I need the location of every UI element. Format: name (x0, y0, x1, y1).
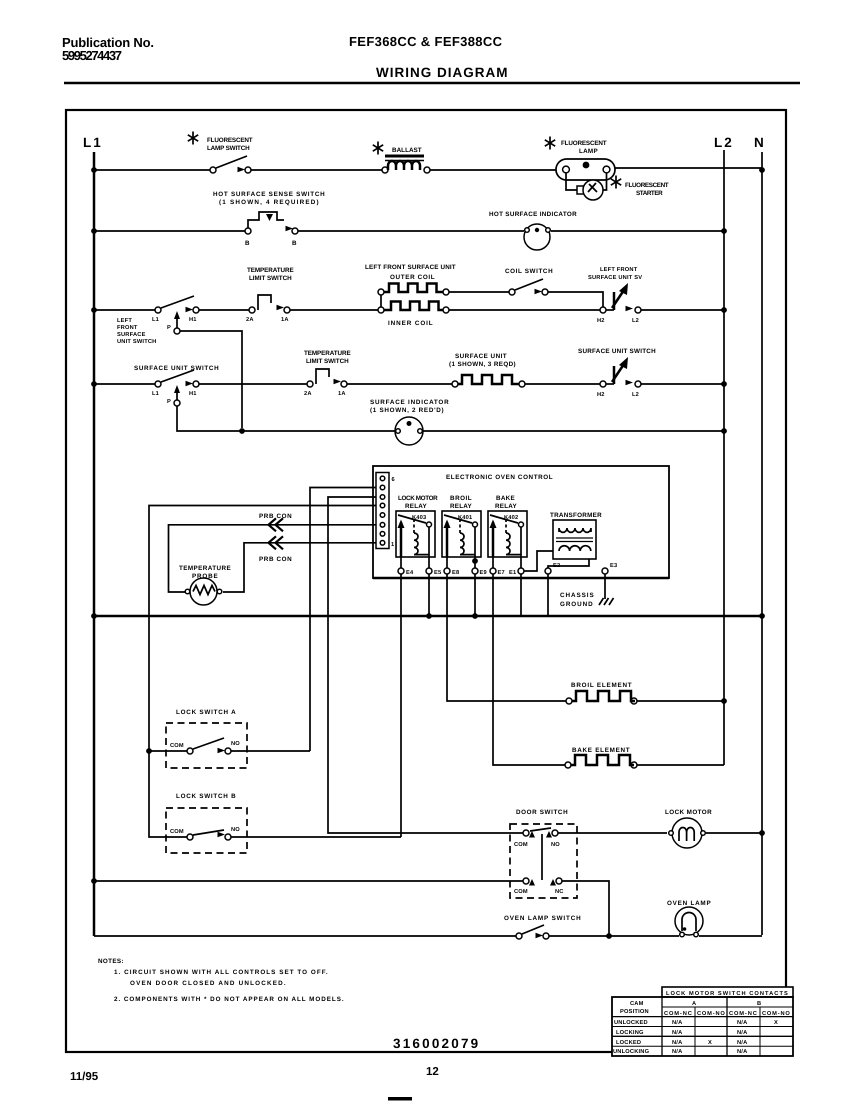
svg-text:X: X (708, 1040, 712, 1046)
svg-text:N/A: N/A (737, 1029, 747, 1036)
svg-text:LAMP: LAMP (579, 148, 598, 155)
svg-text:TRANSFORMER: TRANSFORMER (550, 512, 602, 519)
svg-text:L2: L2 (714, 135, 734, 150)
svg-text:P: P (167, 399, 171, 405)
svg-text:6: 6 (392, 477, 395, 483)
svg-text:UNIT SWITCH: UNIT SWITCH (117, 339, 156, 345)
svg-text:H1: H1 (189, 317, 197, 323)
svg-text:K403: K403 (412, 515, 426, 521)
svg-text:E7: E7 (498, 570, 505, 576)
svg-text:GROUND: GROUND (560, 601, 593, 608)
svg-text:B: B (245, 240, 250, 247)
svg-text:LOCKED: LOCKED (616, 1040, 641, 1046)
svg-text:OUTER COIL: OUTER COIL (390, 274, 435, 281)
svg-text:NO: NO (231, 741, 240, 747)
svg-text:FLUORESCENT: FLUORESCENT (625, 182, 669, 189)
svg-text:PRB CON: PRB CON (259, 556, 292, 563)
svg-text:LEFT FRONT: LEFT FRONT (600, 267, 638, 273)
svg-text:HOT SURFACE SENSE SWITCH: HOT SURFACE SENSE SWITCH (213, 191, 325, 198)
svg-text:OVEN LAMP: OVEN LAMP (667, 900, 711, 907)
svg-text:1: 1 (391, 542, 394, 548)
svg-text:STARTER: STARTER (636, 190, 663, 197)
svg-text:(1 SHOWN, 4 REQUIRED): (1 SHOWN, 4 REQUIRED) (219, 199, 319, 206)
svg-text:316002079: 316002079 (393, 1036, 480, 1051)
svg-text:DOOR SWITCH: DOOR SWITCH (516, 809, 568, 816)
svg-text:WIRING DIAGRAM: WIRING DIAGRAM (376, 65, 509, 80)
svg-text:INNER COIL: INNER COIL (388, 320, 433, 327)
svg-text:COIL SWITCH: COIL SWITCH (505, 268, 553, 275)
svg-text:LOCK SWITCH A: LOCK SWITCH A (176, 709, 236, 716)
svg-text:CAM: CAM (630, 1001, 644, 1007)
svg-text:FLUORESCENT: FLUORESCENT (561, 140, 607, 147)
svg-text:E8: E8 (452, 570, 459, 576)
svg-text:CHASSIS: CHASSIS (560, 592, 594, 599)
svg-text:BAKE ELEMENT: BAKE ELEMENT (572, 747, 630, 754)
svg-text:COM: COM (170, 743, 184, 749)
svg-text:B: B (757, 1001, 761, 1007)
svg-text:PRB CON: PRB CON (259, 513, 292, 520)
svg-text:P: P (167, 325, 171, 331)
svg-text:FRONT: FRONT (117, 325, 138, 331)
svg-text:NC: NC (555, 889, 564, 895)
svg-text:2A: 2A (246, 317, 254, 323)
svg-text:L1: L1 (152, 317, 159, 323)
svg-text:11/95: 11/95 (70, 1071, 99, 1083)
svg-text:1A: 1A (281, 317, 289, 323)
svg-text:SURFACE UNIT: SURFACE UNIT (455, 353, 507, 360)
svg-text:N: N (754, 135, 764, 150)
svg-text:UNLOCKING: UNLOCKING (613, 1049, 650, 1055)
svg-text:BAKE: BAKE (496, 495, 515, 502)
svg-text:(1 SHOWN, 3 REQD): (1 SHOWN, 3 REQD) (449, 361, 516, 368)
svg-text:UNLOCKED: UNLOCKED (614, 1020, 648, 1026)
svg-text:E4: E4 (406, 570, 414, 576)
svg-text:LOCK SWITCH B: LOCK SWITCH B (176, 793, 236, 800)
svg-text:COM-NO: COM-NO (697, 1011, 725, 1017)
svg-text:LOCKING: LOCKING (616, 1030, 644, 1036)
svg-text:LEFT FRONT SURFACE UNIT: LEFT FRONT SURFACE UNIT (365, 264, 456, 271)
svg-text:LOCK MOTOR SWITCH CONTACTS: LOCK MOTOR SWITCH CONTACTS (666, 991, 788, 997)
svg-text:RELAY: RELAY (495, 503, 517, 510)
svg-text:N/A: N/A (672, 1029, 682, 1036)
svg-text:LEFT: LEFT (117, 318, 132, 324)
svg-text:N/A: N/A (737, 1048, 747, 1055)
svg-text:COM: COM (514, 842, 528, 848)
svg-text:N/A: N/A (737, 1019, 747, 1026)
svg-text:COM: COM (170, 829, 184, 835)
svg-text:FLUORESCENT: FLUORESCENT (207, 137, 253, 144)
svg-text:K401: K401 (458, 515, 472, 521)
svg-text:H2: H2 (597, 318, 605, 324)
svg-text:L1: L1 (152, 391, 159, 397)
svg-text:LOCK MOTOR: LOCK MOTOR (398, 495, 438, 502)
svg-text:SURFACE UNIT SV: SURFACE UNIT SV (588, 275, 642, 281)
svg-text:H1: H1 (189, 391, 197, 397)
svg-text:5995274437: 5995274437 (62, 48, 122, 63)
svg-text:LIMIT SWITCH: LIMIT SWITCH (249, 275, 292, 282)
svg-text:(1 SHOWN, 2 RED'D): (1 SHOWN, 2 RED'D) (370, 407, 444, 414)
svg-text:BALLAST: BALLAST (392, 147, 422, 154)
svg-text:L2: L2 (632, 318, 639, 324)
svg-text:E1: E1 (509, 570, 516, 576)
svg-text:L2: L2 (632, 392, 639, 398)
svg-text:E5: E5 (434, 570, 441, 576)
svg-text:LIMIT SWITCH: LIMIT SWITCH (306, 358, 349, 365)
svg-text:ELECTRONIC OVEN CONTROL: ELECTRONIC OVEN CONTROL (446, 474, 553, 481)
svg-text:LAMP SWITCH: LAMP SWITCH (207, 145, 250, 152)
svg-text:NO: NO (551, 842, 560, 848)
svg-text:COM-NC: COM-NC (729, 1011, 757, 1017)
svg-text:SURFACE UNIT SWITCH: SURFACE UNIT SWITCH (134, 365, 219, 372)
svg-text:RELAY: RELAY (450, 503, 472, 510)
svg-text:SURFACE: SURFACE (117, 332, 146, 338)
svg-text:LOCK MOTOR: LOCK MOTOR (665, 809, 712, 816)
svg-text:TEMPERATURE: TEMPERATURE (179, 565, 231, 572)
svg-text:TEMPERATURE: TEMPERATURE (247, 267, 294, 274)
svg-text:K402: K402 (504, 515, 518, 521)
svg-text:TEMPERATURE: TEMPERATURE (304, 350, 351, 357)
svg-text:12: 12 (426, 1066, 439, 1078)
svg-text:A: A (692, 1001, 696, 1007)
svg-text:L1: L1 (83, 135, 103, 150)
svg-text:NOTES:: NOTES: (98, 958, 124, 965)
svg-text:N/A: N/A (672, 1048, 682, 1055)
svg-text:COM: COM (514, 889, 528, 895)
svg-text:BROIL ELEMENT: BROIL ELEMENT (571, 682, 632, 689)
svg-text:HOT SURFACE INDICATOR: HOT SURFACE INDICATOR (489, 211, 577, 218)
svg-text:B: B (292, 240, 297, 247)
svg-text:COM-NO: COM-NO (762, 1011, 790, 1017)
svg-text:2. COMPONENTS WITH * DO NOT AP: 2. COMPONENTS WITH * DO NOT APPEAR ON AL… (114, 996, 344, 1003)
svg-text:1. CIRCUIT SHOWN WITH ALL CONT: 1. CIRCUIT SHOWN WITH ALL CONTROLS SET T… (114, 969, 328, 976)
svg-text:SURFACE UNIT SWITCH: SURFACE UNIT SWITCH (578, 348, 656, 355)
svg-text:OVEN DOOR CLOSED AND UNLOCKED.: OVEN DOOR CLOSED AND UNLOCKED. (130, 980, 286, 987)
svg-text:N/A: N/A (737, 1039, 747, 1046)
svg-text:OVEN LAMP SWITCH: OVEN LAMP SWITCH (504, 915, 581, 922)
svg-text:SURFACE INDICATOR: SURFACE INDICATOR (370, 399, 449, 406)
svg-text:X: X (774, 1020, 778, 1026)
svg-text:BROIL: BROIL (450, 495, 472, 502)
svg-text:N/A: N/A (672, 1019, 682, 1026)
svg-text:POSITION: POSITION (620, 1009, 649, 1015)
svg-text:E3: E3 (610, 563, 617, 569)
svg-text:1A: 1A (338, 391, 346, 397)
svg-text:FEF368CC & FEF388CC: FEF368CC & FEF388CC (349, 34, 503, 49)
svg-text:NO: NO (231, 827, 240, 833)
svg-text:RELAY: RELAY (405, 503, 427, 510)
svg-text:2A: 2A (304, 391, 312, 397)
svg-text:E9: E9 (480, 570, 487, 576)
svg-text:N/A: N/A (672, 1039, 682, 1046)
svg-text:COM-NC: COM-NC (664, 1011, 692, 1017)
svg-text:H2: H2 (597, 392, 605, 398)
